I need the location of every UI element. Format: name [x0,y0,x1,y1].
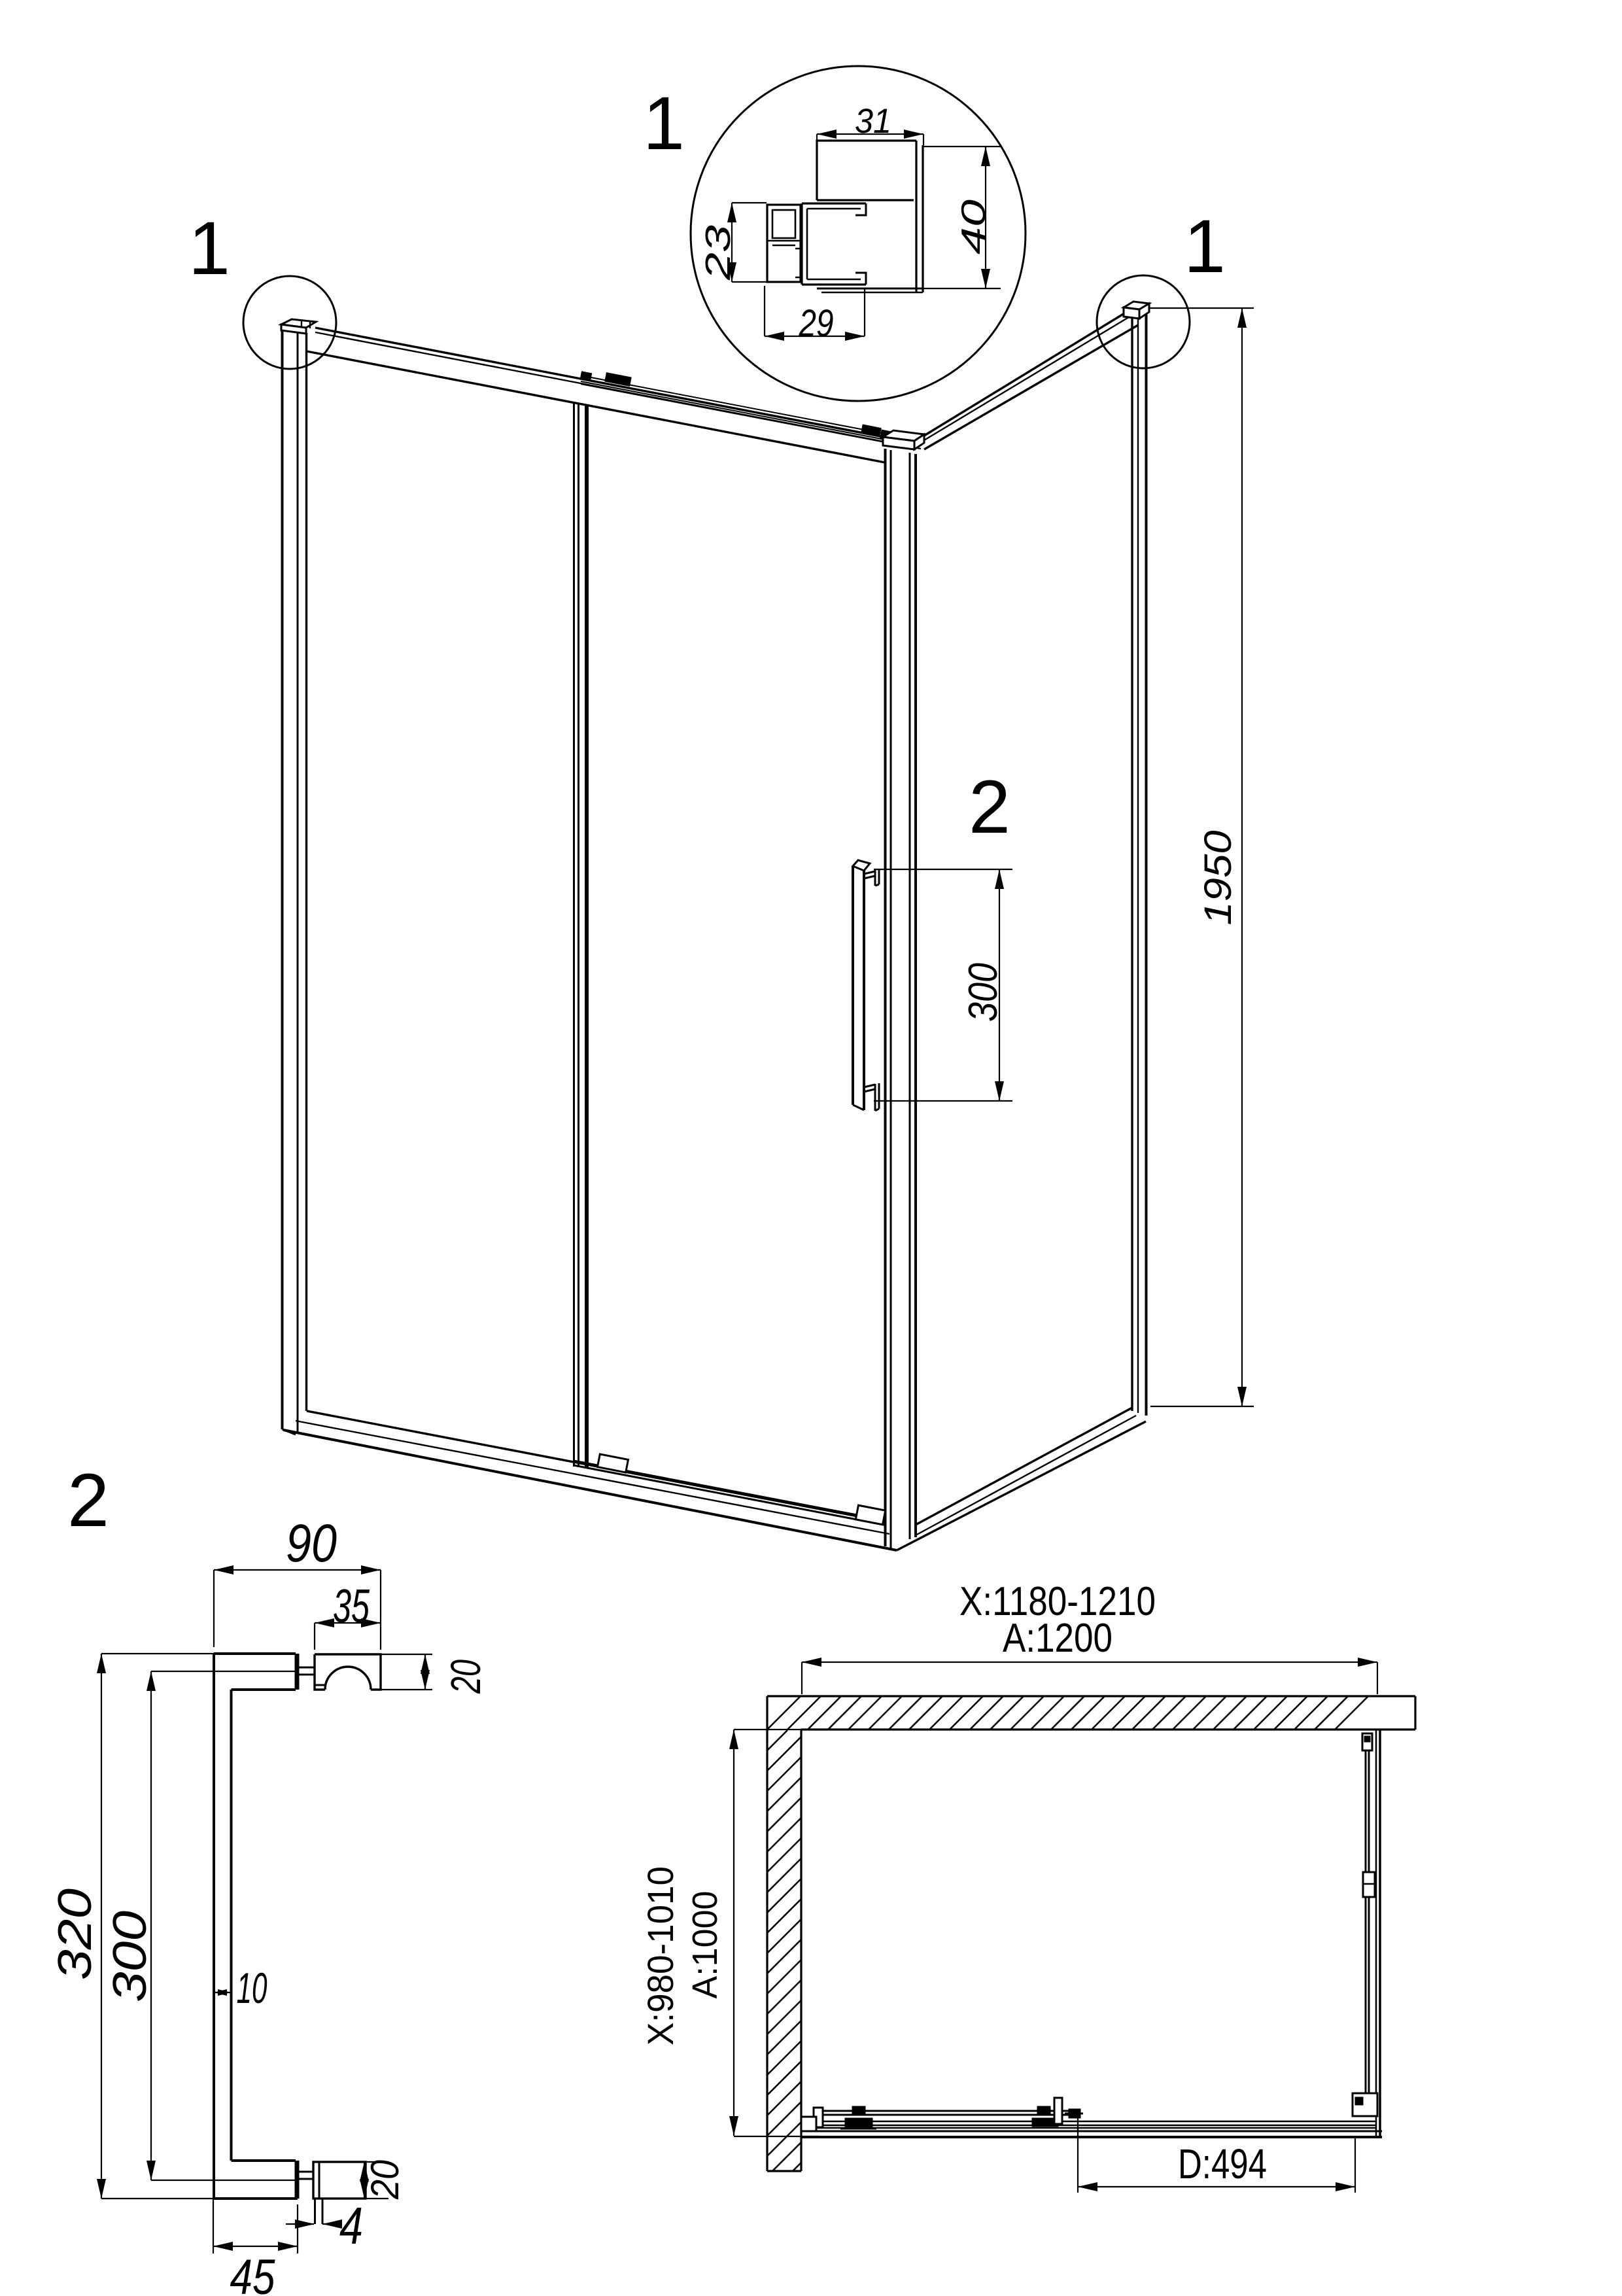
svg-text:4: 4 [339,2197,363,2255]
svg-text:A:1200: A:1200 [1003,1616,1113,1661]
svg-text:23: 23 [699,225,738,281]
svg-text:20: 20 [442,1660,489,1694]
svg-text:300: 300 [104,1911,156,2002]
svg-text:90: 90 [286,1514,337,1573]
svg-text:29: 29 [799,302,834,345]
svg-text:35: 35 [333,1580,370,1633]
svg-text:2: 2 [969,765,1010,849]
svg-text:20: 20 [363,2160,407,2200]
svg-text:31: 31 [855,102,891,141]
svg-text:D:494: D:494 [1178,2140,1267,2187]
svg-text:10: 10 [237,1964,267,2012]
svg-text:300: 300 [961,963,1006,1022]
svg-text:1: 1 [188,207,230,290]
svg-text:1950: 1950 [1197,831,1239,926]
svg-text:A:1000: A:1000 [685,1891,725,1999]
svg-text:1: 1 [1184,205,1226,288]
svg-text:320: 320 [49,1888,101,1980]
svg-text:X:980-1010: X:980-1010 [640,1866,681,2045]
svg-text:40: 40 [955,200,993,254]
svg-text:45: 45 [230,2250,276,2296]
svg-text:2: 2 [67,1459,109,1542]
svg-text:1: 1 [643,82,685,165]
